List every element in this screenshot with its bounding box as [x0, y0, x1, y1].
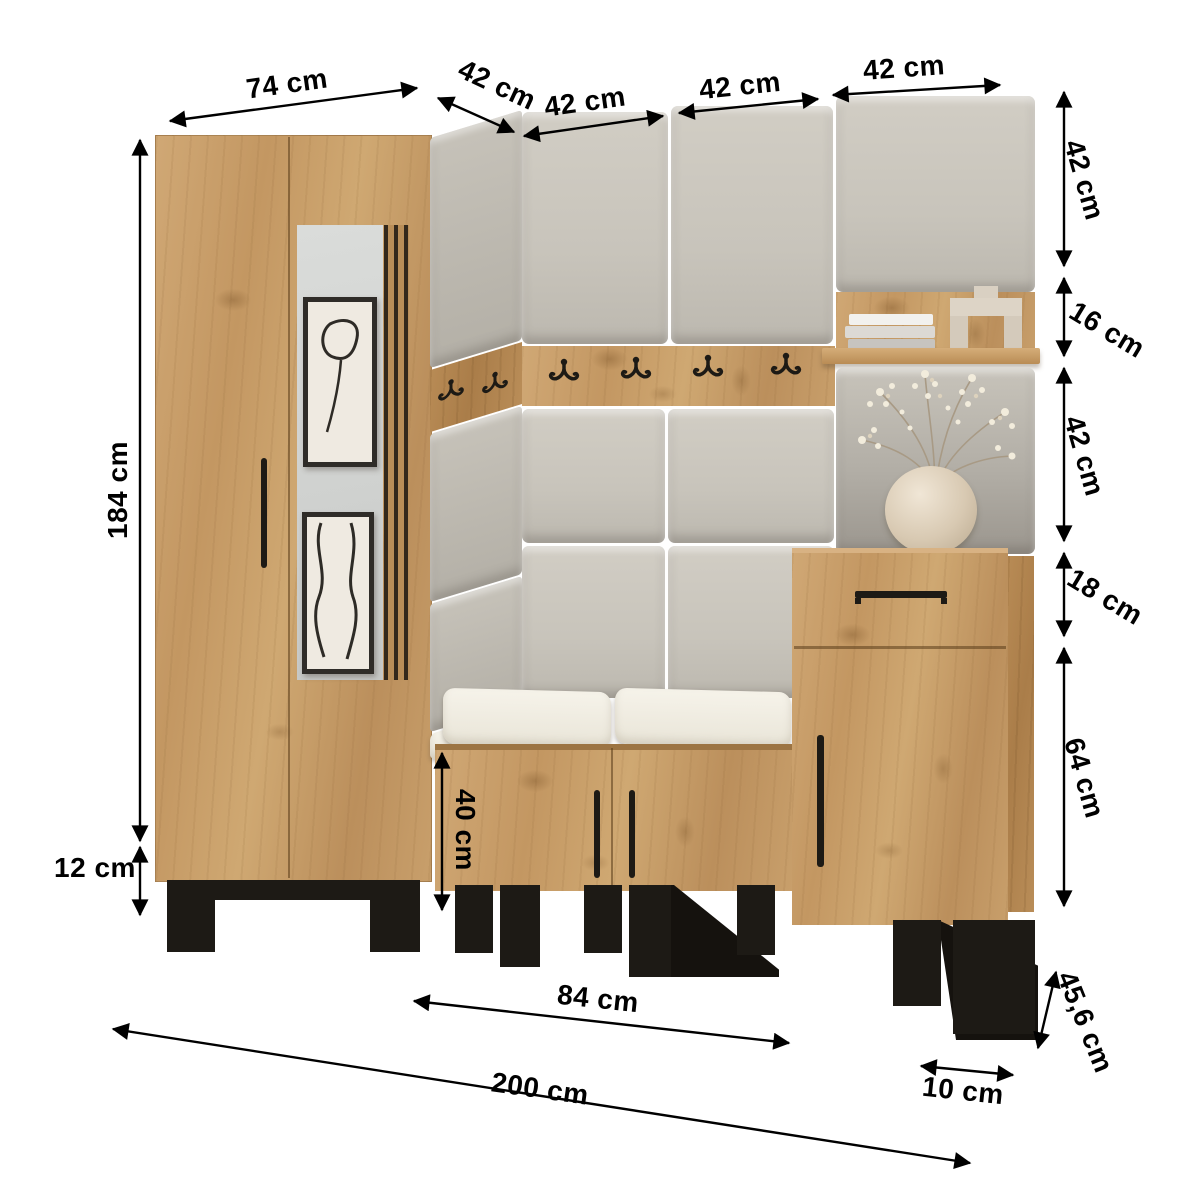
right-cabinet: [792, 548, 1008, 925]
book-stack: [845, 314, 937, 352]
dim-label-drawer-height: 18 cm: [1062, 562, 1149, 632]
upholstered-panel-top-1: [522, 112, 668, 344]
coat-hook-icon: [478, 365, 512, 399]
wardrobe-leg-right: [370, 880, 420, 952]
drawer-handle: [855, 591, 947, 598]
corner-panel-column: [430, 110, 522, 778]
arch-decor-leg-left: [950, 316, 968, 352]
dim-label-bench-width: 84 cm: [556, 979, 641, 1019]
dim-label-door-height: 64 cm: [1057, 734, 1110, 822]
bench-foot: [629, 885, 671, 977]
coat-hook-icon: [434, 373, 468, 407]
dim-label-depth: 45,6 cm: [1050, 967, 1119, 1078]
upholstered-panel-back-2: [668, 409, 834, 543]
coat-hook-icon: [544, 358, 584, 384]
right-cabinet-drawer-seam: [794, 646, 1006, 649]
upholstered-panel-back-1: [522, 409, 665, 543]
dim-label-wardrobe-width: 74 cm: [244, 62, 330, 105]
bench-door-handle-right: [629, 790, 635, 878]
dim-label-shelf-band: 16 cm: [1064, 295, 1151, 365]
upholstered-panel-corner-mid: [430, 406, 522, 602]
abstract-art-blob: [308, 302, 372, 462]
bench-door-handle-left: [594, 790, 600, 878]
abstract-art-waves: [307, 517, 369, 669]
dim-label-panel-b: 42 cm: [698, 66, 783, 106]
dim-label-wardrobe-height: 184 cm: [102, 441, 134, 539]
bench-cushion-right: [615, 688, 791, 749]
framed-art-top: [303, 297, 377, 467]
bench-foot: [455, 885, 493, 953]
coat-hook-icon: [688, 354, 728, 380]
vase: [885, 466, 977, 554]
upholstered-panel-corner-top: [430, 110, 522, 368]
book: [849, 314, 933, 325]
coat-hook-icon: [766, 352, 806, 378]
framed-art-bottom: [302, 512, 374, 674]
wardrobe-door-seam: [288, 137, 290, 878]
upholstered-panel-top-3: [836, 96, 1035, 292]
upholstered-panel-top-2: [671, 106, 833, 344]
dim-label-corner-width: 42 cm: [453, 53, 541, 117]
drawer-handle-end: [855, 598, 861, 604]
bench-foot: [500, 885, 540, 967]
drawer-handle-end: [941, 598, 947, 604]
dim-label-total-width: 200 cm: [489, 1066, 590, 1111]
right-cabinet-side: [1008, 556, 1034, 912]
coat-hook-icon: [616, 356, 656, 382]
dim-line-panel-c: [833, 85, 1000, 95]
bench-door-seam: [611, 748, 613, 885]
bench-cabinet: [435, 744, 792, 891]
book: [845, 326, 935, 338]
cabinet-foot: [893, 920, 941, 1006]
dim-label-top-panel-height: 42 cm: [1057, 136, 1110, 224]
dim-label-leg-height: 12 cm: [54, 852, 136, 884]
wardrobe-handle: [261, 458, 267, 568]
upholstered-panel-back-3: [522, 546, 665, 698]
lamella-slat-strip: [384, 225, 409, 680]
dim-label-bench-height: 40 cm: [449, 789, 481, 871]
dim-label-foot-width: 10 cm: [921, 1071, 1006, 1111]
hook-rail: [522, 346, 835, 406]
diagram-stage: 74 cm 42 cm 42 cm 42 cm 42 cm 42 cm 16 c…: [0, 0, 1200, 1200]
bench-foot: [584, 885, 622, 953]
dim-label-panel-c: 42 cm: [862, 49, 946, 87]
cabinet-foot: [953, 920, 1035, 1034]
dim-label-mid-panel-height: 42 cm: [1057, 412, 1110, 500]
right-cabinet-door-handle: [817, 735, 824, 867]
bench-foot: [737, 885, 775, 955]
arch-decor-top: [950, 298, 1022, 316]
arch-decor: [950, 286, 1022, 352]
arch-decor-finial: [974, 286, 998, 298]
arch-decor-leg-right: [1004, 316, 1022, 352]
bench-cushion-left: [443, 688, 611, 748]
